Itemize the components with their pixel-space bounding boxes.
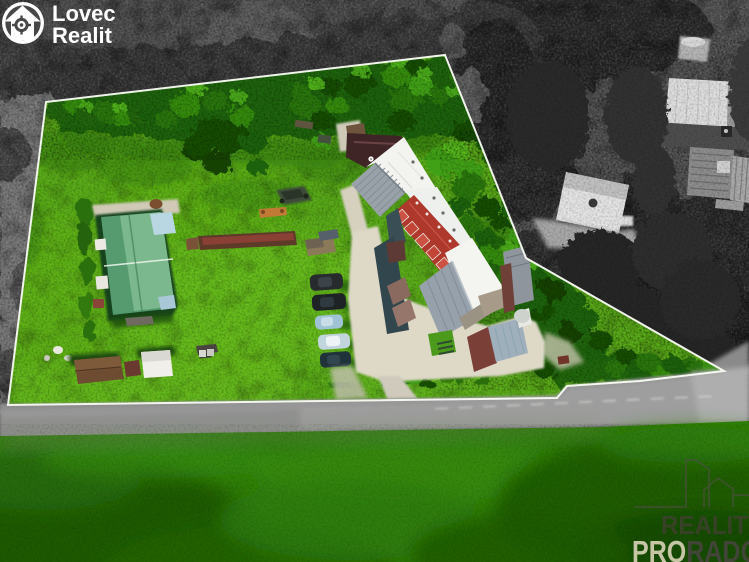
svg-text:Realit: Realit xyxy=(52,23,113,48)
svg-text:PRORADOST: PRORADOST xyxy=(632,534,749,562)
